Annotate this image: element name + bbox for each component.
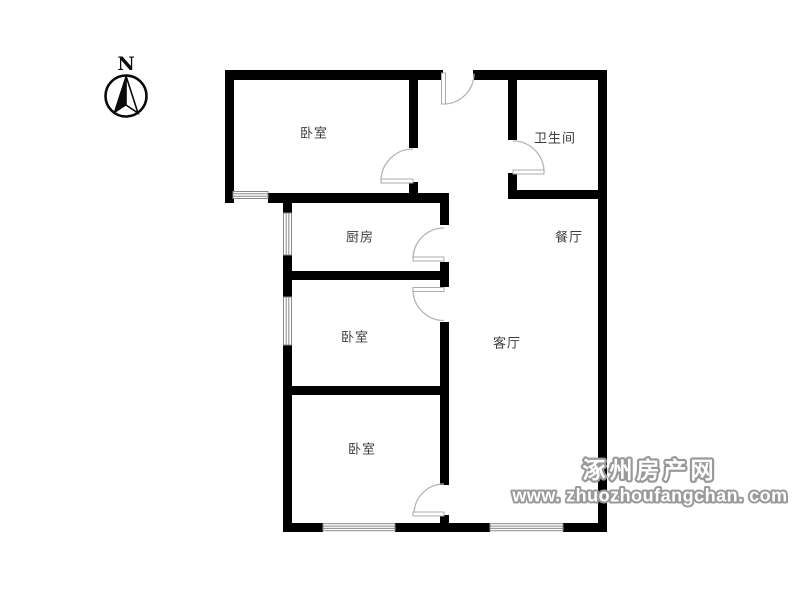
door-bedroom-middle bbox=[413, 288, 444, 321]
watermark-site-name: 涿州房产网 bbox=[583, 457, 718, 483]
door-kitchen bbox=[413, 228, 444, 261]
door-bedroom-bottom bbox=[413, 484, 444, 516]
compass-north-icon: N bbox=[100, 50, 156, 122]
door-entrance bbox=[442, 73, 475, 104]
room-label-bedroom-top-left: 卧室 bbox=[300, 123, 328, 142]
room-label-bedroom-middle: 卧室 bbox=[341, 327, 369, 346]
watermark-site-url: www. zhuozhoufangchan. com bbox=[511, 486, 787, 506]
floorplan-page: N 卧室 卫生间 厨房 餐厅 卧室 客厅 卧室 涿州房产网 www. zhuoz… bbox=[0, 0, 800, 600]
room-label-kitchen: 厨房 bbox=[346, 227, 374, 246]
room-label-living-room: 客厅 bbox=[493, 333, 521, 352]
door-bedroom-top bbox=[381, 149, 413, 183]
watermark: 涿州房产网 www. zhuozhoufangchan. com bbox=[492, 452, 800, 512]
window-bedroom-middle bbox=[284, 297, 292, 345]
window-bedroom-top bbox=[233, 192, 268, 199]
window-kitchen bbox=[284, 213, 292, 255]
window-bedroom-bottom bbox=[323, 524, 395, 531]
room-label-dining-room: 餐厅 bbox=[555, 227, 583, 246]
window-living-room bbox=[490, 524, 563, 531]
room-label-bathroom: 卫生间 bbox=[534, 128, 576, 147]
room-label-bedroom-bottom: 卧室 bbox=[348, 439, 376, 458]
compass-north-label: N bbox=[117, 53, 134, 75]
